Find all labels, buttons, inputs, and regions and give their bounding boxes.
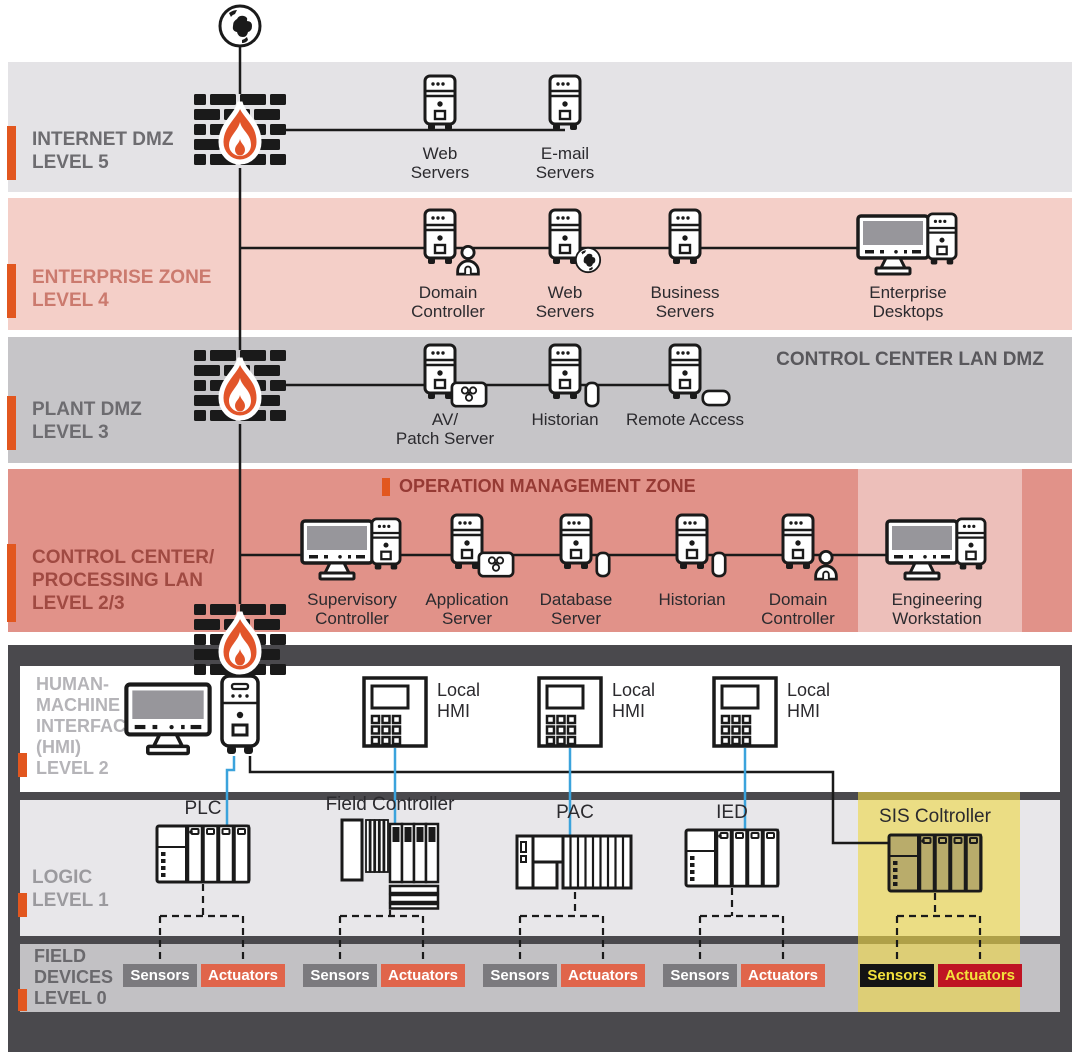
accent-bar-omz	[382, 478, 390, 496]
sis-controller-icon	[887, 833, 983, 893]
accent-bar-hmi	[18, 753, 27, 777]
device-label-business-servers: Business Servers	[620, 283, 750, 321]
actuators-badge-3: Actuators	[561, 964, 645, 987]
historian-icon-l23	[675, 513, 729, 579]
hmi-workstation-tower-icon	[220, 674, 260, 758]
device-label-pac: PAC	[510, 802, 640, 823]
web-server-icon-l4	[548, 208, 606, 276]
device-label-field-controller: Field Controller	[305, 794, 475, 815]
device-label-local-hmi-1: Local HMI	[437, 680, 517, 721]
firewall-icon-ot	[192, 602, 288, 680]
accent-bar-l3	[7, 396, 16, 450]
actuators-badge-4: Actuators	[741, 964, 825, 987]
supervisory-controller-icon	[300, 515, 404, 581]
zone-label-plant-dmz: PLANT DMZ LEVEL 3	[32, 398, 142, 444]
accent-bar-field	[18, 989, 27, 1011]
zone-label-field: FIELD DEVICES LEVEL 0	[34, 946, 113, 1010]
historian-icon-l3	[548, 343, 602, 409]
actuators-badge-1: Actuators	[201, 964, 285, 987]
accent-bar-l4	[7, 264, 16, 318]
device-label-local-hmi-2: Local HMI	[612, 680, 692, 721]
device-label-supervisory-controller: Supervisory Controller	[287, 590, 417, 628]
sensors-badge-4: Sensors	[663, 964, 737, 987]
hmi-workstation-monitor-icon	[124, 682, 212, 756]
remote-access-icon	[668, 343, 734, 409]
pac-icon	[515, 830, 635, 892]
engineering-workstation-icon	[885, 515, 989, 581]
device-label-web-servers-l5: Web Servers	[375, 144, 505, 182]
device-label-email-servers: E-mail Servers	[500, 144, 630, 182]
enterprise-desktop-icon	[856, 210, 960, 276]
field-controller-icon	[340, 818, 440, 910]
firewall-icon-l5	[192, 92, 288, 170]
device-label-domain-controller-l4: Domain Controller	[383, 283, 513, 321]
zone-label-enterprise: ENTERPRISE ZONE LEVEL 4	[32, 266, 211, 312]
accent-bar-logic	[18, 893, 27, 917]
logic-to-field-lines	[160, 884, 980, 962]
business-server-icon	[668, 208, 702, 272]
sensors-badge-3: Sensors	[483, 964, 557, 987]
actuators-badge-2: Actuators	[381, 964, 465, 987]
device-label-web-servers-l4: Web Servers	[500, 283, 630, 321]
av-patch-server-icon	[423, 343, 489, 409]
local-hmi-icon-2	[537, 676, 603, 748]
accent-bar-l5	[7, 126, 16, 180]
application-server-icon	[450, 513, 516, 579]
device-label-historian-l3: Historian	[500, 410, 630, 429]
device-label-domain-controller-l23: Domain Controller	[733, 590, 863, 628]
database-server-icon	[559, 513, 613, 579]
device-label-remote-access: Remote Access	[620, 410, 750, 429]
actuators-badge-sis: Actuators	[938, 964, 1022, 987]
omz-title-text: OPERATION MANAGEMENT ZONE	[399, 476, 696, 497]
sensors-badge-sis: Sensors	[860, 964, 934, 987]
device-label-av-patch-server: AV/ Patch Server	[380, 410, 510, 448]
device-label-ied: IED	[667, 802, 797, 823]
accent-bar-l23	[7, 544, 16, 622]
internet-globe-icon	[217, 3, 263, 49]
local-hmi-icon-1	[362, 676, 428, 748]
device-label-plc: PLC	[138, 798, 268, 819]
zone-label-internet-dmz: INTERNET DMZ LEVEL 5	[32, 128, 173, 174]
device-label-engineering-workstation: Engineering Workstation	[872, 590, 1002, 628]
zone-label-control-center: CONTROL CENTER/ PROCESSING LAN LEVEL 2/3	[32, 546, 214, 616]
firewall-icon-l3	[192, 348, 288, 426]
device-label-enterprise-desktops: Enterprise Desktops	[843, 283, 973, 321]
domain-controller-icon-l4	[423, 208, 485, 276]
sensors-badge-2: Sensors	[303, 964, 377, 987]
server-icon-web-l5	[423, 74, 457, 138]
device-label-database-server: Database Server	[511, 590, 641, 628]
purdue-model-diagram: INTERNET DMZ LEVEL 5 ENTERPRISE ZONE LEV…	[0, 0, 1080, 1060]
local-hmi-icon-3	[712, 676, 778, 748]
server-icon-email	[548, 74, 582, 138]
device-label-sis-controller: SIS Coltroller	[855, 806, 1015, 827]
zone-label-logic: LOGIC LEVEL 1	[32, 866, 109, 912]
operation-management-zone-title: OPERATION MANAGEMENT ZONE	[382, 476, 696, 497]
plc-icon	[155, 824, 251, 884]
domain-controller-icon-l23	[781, 513, 843, 581]
control-center-lan-dmz-label: CONTROL CENTER LAN DMZ	[765, 349, 1055, 371]
sensors-badge-1: Sensors	[123, 964, 197, 987]
ied-icon	[684, 828, 780, 888]
device-label-local-hmi-3: Local HMI	[787, 680, 867, 721]
